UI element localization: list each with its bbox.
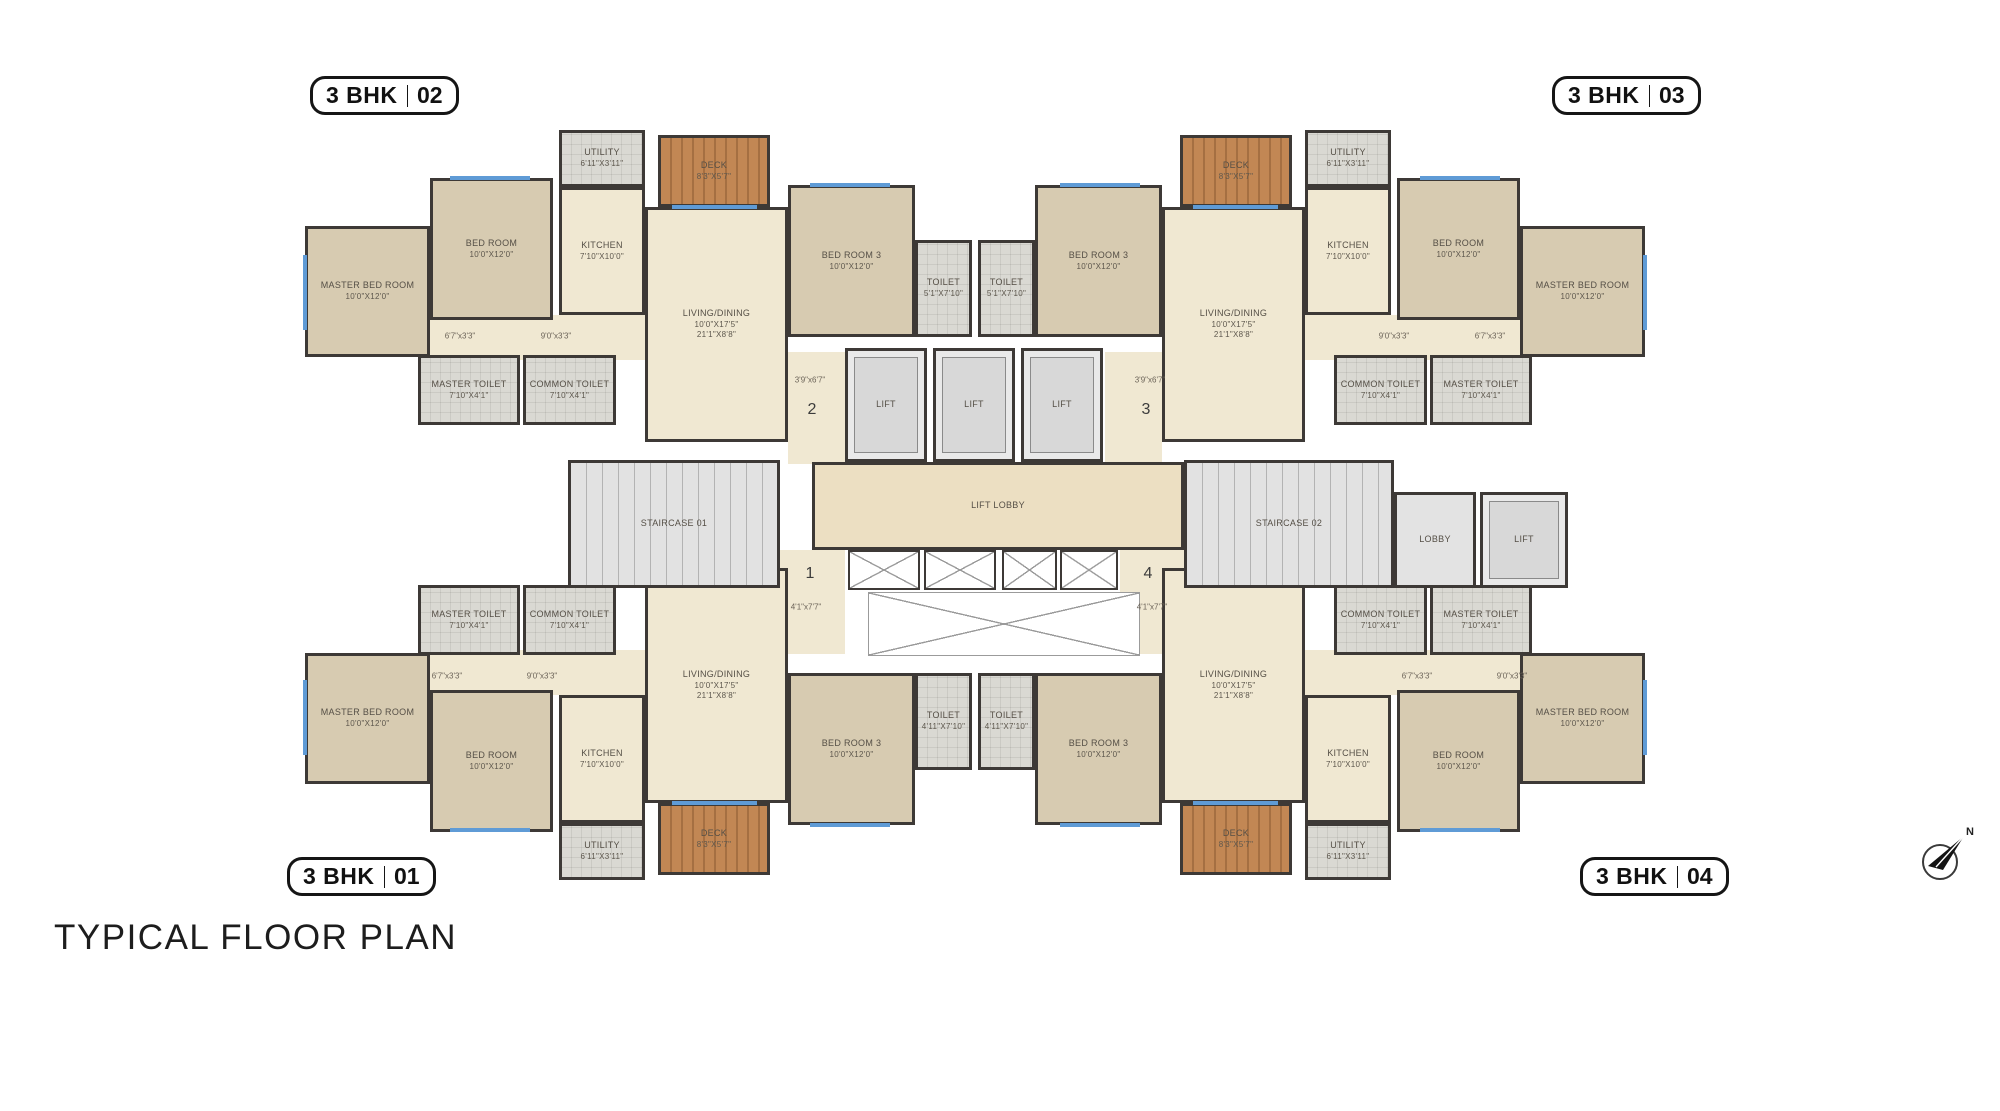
room-03-master-toilet: MASTER TOILET7'10"X4'1" [1430,355,1532,425]
room-label: TOILET5'1"X7'10" [924,277,963,299]
duct [848,550,920,590]
room-01-master-bed-room: MASTER BED ROOM10'0"X12'0" [305,653,430,784]
room-label: UTILITY6'11"X3'11" [1327,840,1370,862]
unit-badge-number: 04 [1687,863,1713,890]
room-01-bed-room: BED ROOM10'0"X12'0" [430,690,553,832]
duct [1002,550,1057,590]
room-label: LIFT [964,399,984,411]
room-label: TOILET4'11"X7'10" [922,710,965,732]
room-03-bed-room: BED ROOM10'0"X12'0" [1397,178,1520,320]
window-opening [1060,183,1140,187]
room-02-common-toilet: COMMON TOILET7'10"X4'1" [523,355,616,425]
room-label: LIFT [1514,534,1534,546]
north-indicator: N [1912,826,1976,890]
room-label: BED ROOM 310'0"X12'0" [1069,250,1129,272]
room-label: BED ROOM10'0"X12'0" [466,750,517,772]
duct [1060,550,1118,590]
room-label: MASTER TOILET7'10"X4'1" [431,379,506,401]
entry-number-3: 3 [1142,401,1151,419]
dimension-annotation: 3'9"x6'7" [1135,376,1166,385]
dimension-annotation: 9'0"x3'3" [1379,332,1410,341]
badge-divider [1677,866,1679,888]
room-label: MASTER TOILET7'10"X4'1" [1443,379,1518,401]
room-02-master-bed-room: MASTER BED ROOM10'0"X12'0" [305,226,430,357]
badge-divider [384,866,386,888]
room-03-deck: DECK8'3"X5'7" [1180,135,1292,207]
dimension-annotation: 6'7"x3'3" [445,332,476,341]
dimension-annotation: 4'1"x7'7" [791,603,822,612]
room-label: UTILITY6'11"X3'11" [581,840,624,862]
entry-number-4: 4 [1144,565,1153,583]
dimension-annotation: 9'0"x3'3" [527,672,558,681]
room-label: LIVING/DINING10'0"X17'5"21'1"X8'8" [1200,669,1267,701]
room-lift-4: LIFT [1480,492,1568,588]
room-label: LOBBY [1419,534,1451,546]
room-01-living-dining: LIVING/DINING10'0"X17'5"21'1"X8'8" [645,568,788,803]
window-opening [672,205,757,209]
room-02-deck: DECK8'3"X5'7" [658,135,770,207]
room-04-toilet: TOILET4'11"X7'10" [978,673,1035,770]
room-lift-3: LIFT [1021,348,1103,462]
floor-plan: 3 BHK 02 3 BHK 03 3 BHK 01 3 BHK 04 TYPI… [0,0,2000,1111]
room-label: KITCHEN7'10"X10'0" [580,748,624,770]
room-01-utility: UTILITY6'11"X3'11" [559,823,645,880]
room-label: STAIRCASE 01 [641,518,707,530]
room-label: KITCHEN7'10"X10'0" [580,240,624,262]
room-label: LIVING/DINING10'0"X17'5"21'1"X8'8" [683,308,750,340]
room-02-bed-room: BED ROOM10'0"X12'0" [430,178,553,320]
room-label: MASTER BED ROOM10'0"X12'0" [1536,707,1630,729]
entry-number-1: 1 [806,565,815,583]
room-label: BED ROOM 310'0"X12'0" [1069,738,1129,760]
window-opening [450,828,530,832]
dimension-annotation: 6'7"x3'3" [1402,672,1433,681]
window-opening [1420,828,1500,832]
room-label: DECK8'3"X5'7" [1219,828,1254,850]
room-04-bed-room-3: BED ROOM 310'0"X12'0" [1035,673,1162,825]
plan-title: TYPICAL FLOOR PLAN [54,918,457,958]
room-04-living-dining: LIVING/DINING10'0"X17'5"21'1"X8'8" [1162,568,1305,803]
room-03-common-toilet: COMMON TOILET7'10"X4'1" [1334,355,1427,425]
room-label: MASTER BED ROOM10'0"X12'0" [321,280,415,302]
unit-badge-number: 02 [417,82,443,109]
room-03-bed-room-3: BED ROOM 310'0"X12'0" [1035,185,1162,337]
room-label: DECK8'3"X5'7" [1219,160,1254,182]
room-lift-lobby: LIFT LOBBY [812,462,1184,550]
room-label: LIFT [1052,399,1072,411]
room-01-kitchen: KITCHEN7'10"X10'0" [559,695,645,823]
room-label: LIVING/DINING10'0"X17'5"21'1"X8'8" [1200,308,1267,340]
room-04-bed-room: BED ROOM10'0"X12'0" [1397,690,1520,832]
room-03-master-bed-room: MASTER BED ROOM10'0"X12'0" [1520,226,1645,357]
window-opening [1060,823,1140,827]
room-label: DECK8'3"X5'7" [697,828,732,850]
window-opening [1193,801,1278,805]
room-label: TOILET4'11"X7'10" [985,710,1028,732]
dimension-annotation: 9'0"x3'3" [541,332,572,341]
room-label: KITCHEN7'10"X10'0" [1326,240,1370,262]
room-01-toilet: TOILET4'11"X7'10" [915,673,972,770]
room-03-utility: UTILITY6'11"X3'11" [1305,130,1391,187]
unit-badge-number: 03 [1659,82,1685,109]
room-04-master-bed-room: MASTER BED ROOM10'0"X12'0" [1520,653,1645,784]
north-label: N [1966,826,1974,838]
dimension-annotation: 6'7"x3'3" [1475,332,1506,341]
window-opening [303,680,307,755]
room-label: MASTER BED ROOM10'0"X12'0" [321,707,415,729]
room-02-living-dining: LIVING/DINING10'0"X17'5"21'1"X8'8" [645,207,788,442]
room-label: KITCHEN7'10"X10'0" [1326,748,1370,770]
dimension-annotation: 4'1"x7'7" [1137,603,1168,612]
room-label: COMMON TOILET7'10"X4'1" [530,609,610,631]
room-lift-2: LIFT [933,348,1015,462]
room-lift-1: LIFT [845,348,927,462]
room-04-utility: UTILITY6'11"X3'11" [1305,823,1391,880]
window-opening [810,183,890,187]
room-03-toilet: TOILET5'1"X7'10" [978,240,1035,337]
window-opening [1643,680,1647,755]
duct [924,550,996,590]
room-label: COMMON TOILET7'10"X4'1" [1341,609,1421,631]
room-staircase-02: STAIRCASE 02 [1184,460,1394,588]
dimension-annotation: 3'9"x6'7" [795,376,826,385]
window-opening [810,823,890,827]
unit-badge-04: 3 BHK 04 [1580,857,1729,896]
unit-badge-number: 01 [394,863,420,890]
badge-divider [407,85,409,107]
room-label: MASTER TOILET7'10"X4'1" [431,609,506,631]
window-opening [1193,205,1278,209]
room-04-deck: DECK8'3"X5'7" [1180,803,1292,875]
room-label: UTILITY6'11"X3'11" [1327,147,1370,169]
room-label: STAIRCASE 02 [1256,518,1322,530]
window-opening [1643,255,1647,330]
room-01-bed-room-3: BED ROOM 310'0"X12'0" [788,673,915,825]
room-label: LIVING/DINING10'0"X17'5"21'1"X8'8" [683,669,750,701]
window-opening [1420,176,1500,180]
unit-badge-bhk: 3 BHK [303,863,375,890]
room-01-common-toilet: COMMON TOILET7'10"X4'1" [523,585,616,655]
room-02-toilet: TOILET5'1"X7'10" [915,240,972,337]
entry-number-2: 2 [808,401,817,419]
unit-badge-01: 3 BHK 01 [287,857,436,896]
room-label: MASTER BED ROOM10'0"X12'0" [1536,280,1630,302]
room-label: MASTER TOILET7'10"X4'1" [1443,609,1518,631]
room-03-kitchen: KITCHEN7'10"X10'0" [1305,187,1391,315]
window-opening [672,801,757,805]
room-01-deck: DECK8'3"X5'7" [658,803,770,875]
unit-badge-02: 3 BHK 02 [310,76,459,115]
dimension-annotation: 6'7"x3'3" [432,672,463,681]
service-shaft [868,592,1140,656]
room-04-kitchen: KITCHEN7'10"X10'0" [1305,695,1391,823]
window-opening [303,255,307,330]
room-label: BED ROOM10'0"X12'0" [1433,238,1484,260]
room-label: BED ROOM10'0"X12'0" [466,238,517,260]
room-04-master-toilet: MASTER TOILET7'10"X4'1" [1430,585,1532,655]
room-label: BED ROOM 310'0"X12'0" [822,250,882,272]
room-label: BED ROOM 310'0"X12'0" [822,738,882,760]
room-label: BED ROOM10'0"X12'0" [1433,750,1484,772]
room-02-master-toilet: MASTER TOILET7'10"X4'1" [418,355,520,425]
unit-badge-bhk: 3 BHK [1596,863,1668,890]
window-opening [450,176,530,180]
dimension-annotation: 9'0"x3'3" [1497,672,1528,681]
room-label: DECK8'3"X5'7" [697,160,732,182]
room-label: COMMON TOILET7'10"X4'1" [530,379,610,401]
room-label: COMMON TOILET7'10"X4'1" [1341,379,1421,401]
room-label: UTILITY6'11"X3'11" [581,147,624,169]
room-staircase-01: STAIRCASE 01 [568,460,780,588]
room-01-master-toilet: MASTER TOILET7'10"X4'1" [418,585,520,655]
room-label: TOILET5'1"X7'10" [987,277,1026,299]
room-03-living-dining: LIVING/DINING10'0"X17'5"21'1"X8'8" [1162,207,1305,442]
room-label: LIFT LOBBY [971,500,1025,512]
room-02-kitchen: KITCHEN7'10"X10'0" [559,187,645,315]
room-entry-foyer-3 [1105,352,1162,464]
room-04-common-toilet: COMMON TOILET7'10"X4'1" [1334,585,1427,655]
room-label: LIFT [876,399,896,411]
room-lobby: LOBBY [1394,492,1476,588]
unit-badge-bhk: 3 BHK [1568,82,1640,109]
room-02-bed-room-3: BED ROOM 310'0"X12'0" [788,185,915,337]
unit-badge-03: 3 BHK 03 [1552,76,1701,115]
unit-badge-bhk: 3 BHK [326,82,398,109]
badge-divider [1649,85,1651,107]
room-02-utility: UTILITY6'11"X3'11" [559,130,645,187]
